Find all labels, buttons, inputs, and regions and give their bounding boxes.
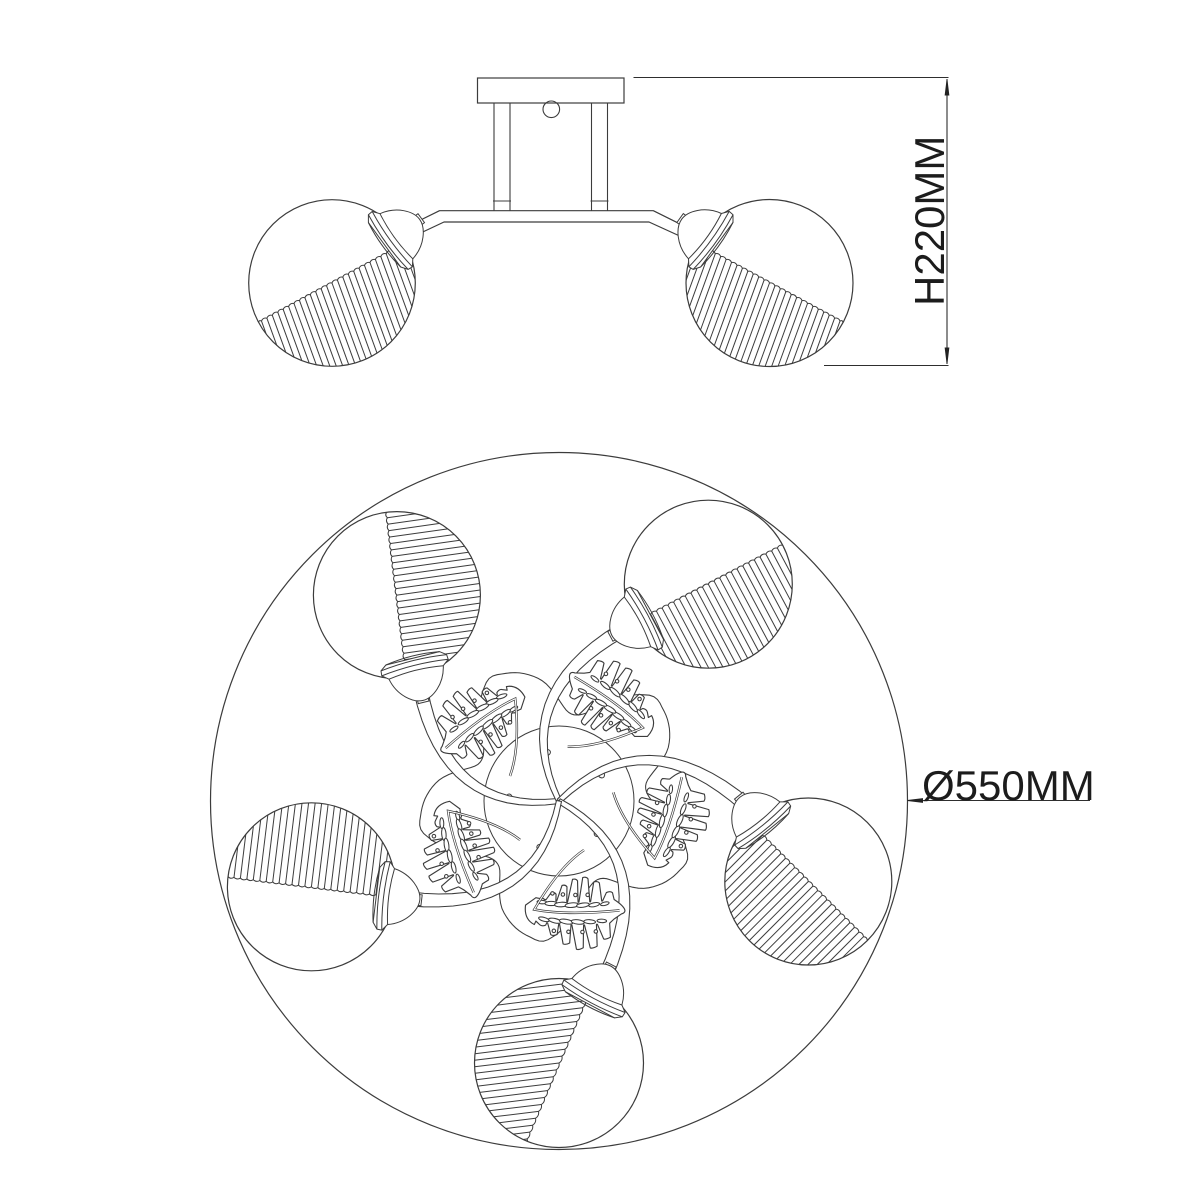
svg-text:H220MM: H220MM	[906, 136, 953, 306]
svg-text:Ø550MM: Ø550MM	[922, 762, 1095, 809]
